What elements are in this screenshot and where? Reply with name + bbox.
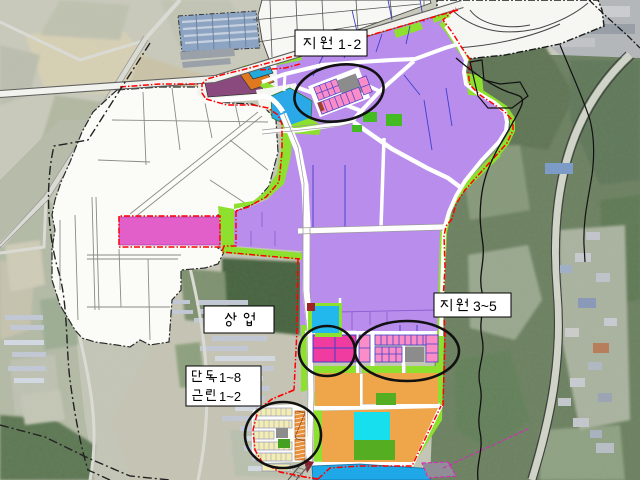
svg-text:1~8: 1~8 — [219, 370, 241, 385]
svg-text:1~2: 1~2 — [219, 389, 241, 404]
svg-text:1-2: 1-2 — [338, 36, 363, 52]
svg-text:3~5: 3~5 — [473, 298, 497, 314]
